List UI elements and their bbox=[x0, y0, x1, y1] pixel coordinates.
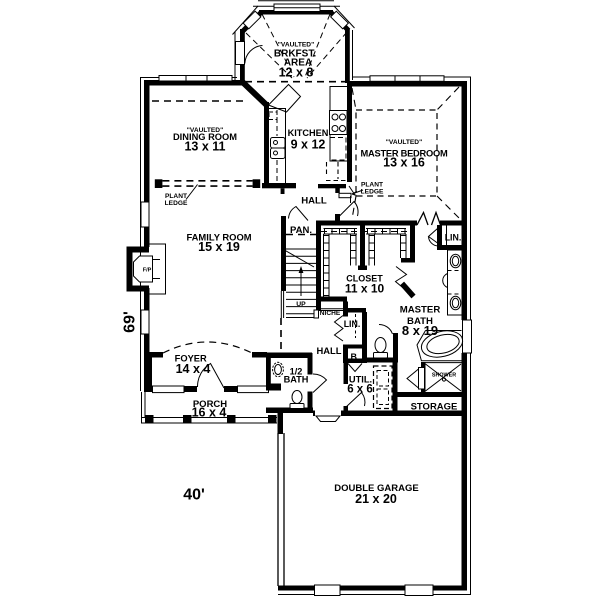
svg-text:40': 40' bbox=[183, 487, 205, 504]
svg-text:LIN.: LIN. bbox=[344, 319, 361, 329]
svg-text:21 x 20: 21 x 20 bbox=[355, 492, 397, 506]
svg-text:13 x 11: 13 x 11 bbox=[184, 140, 225, 154]
svg-text:BATH: BATH bbox=[284, 375, 309, 385]
svg-text:HALL: HALL bbox=[301, 196, 327, 207]
svg-text:LIN.: LIN. bbox=[445, 233, 462, 243]
svg-text:13 x 16: 13 x 16 bbox=[383, 155, 425, 169]
svg-text:15 x 19: 15 x 19 bbox=[198, 240, 240, 254]
svg-text:NICHE: NICHE bbox=[320, 310, 341, 317]
svg-text:PLANT: PLANT bbox=[361, 182, 383, 189]
svg-text:9 x 12: 9 x 12 bbox=[291, 138, 326, 152]
svg-text:11 x 10: 11 x 10 bbox=[345, 282, 385, 296]
svg-text:16 x 4: 16 x 4 bbox=[192, 406, 227, 420]
svg-text:14 x 4: 14 x 4 bbox=[176, 362, 211, 376]
svg-text:LEDGE: LEDGE bbox=[361, 189, 384, 196]
svg-text:HALL: HALL bbox=[317, 345, 342, 356]
svg-text:69': 69' bbox=[122, 311, 139, 333]
svg-text:"VAULTED": "VAULTED" bbox=[278, 42, 314, 49]
svg-text:12 x 8: 12 x 8 bbox=[279, 66, 314, 80]
svg-text:"VAULTED": "VAULTED" bbox=[386, 139, 422, 146]
svg-text:F/P: F/P bbox=[143, 268, 152, 274]
svg-text:PLANT: PLANT bbox=[165, 193, 187, 200]
svg-text:LEDGE: LEDGE bbox=[165, 200, 188, 207]
svg-text:KITCHEN: KITCHEN bbox=[288, 128, 329, 138]
svg-text:MASTER: MASTER bbox=[400, 305, 441, 316]
svg-text:UP: UP bbox=[296, 301, 306, 308]
svg-text:6 x 6: 6 x 6 bbox=[347, 383, 373, 395]
